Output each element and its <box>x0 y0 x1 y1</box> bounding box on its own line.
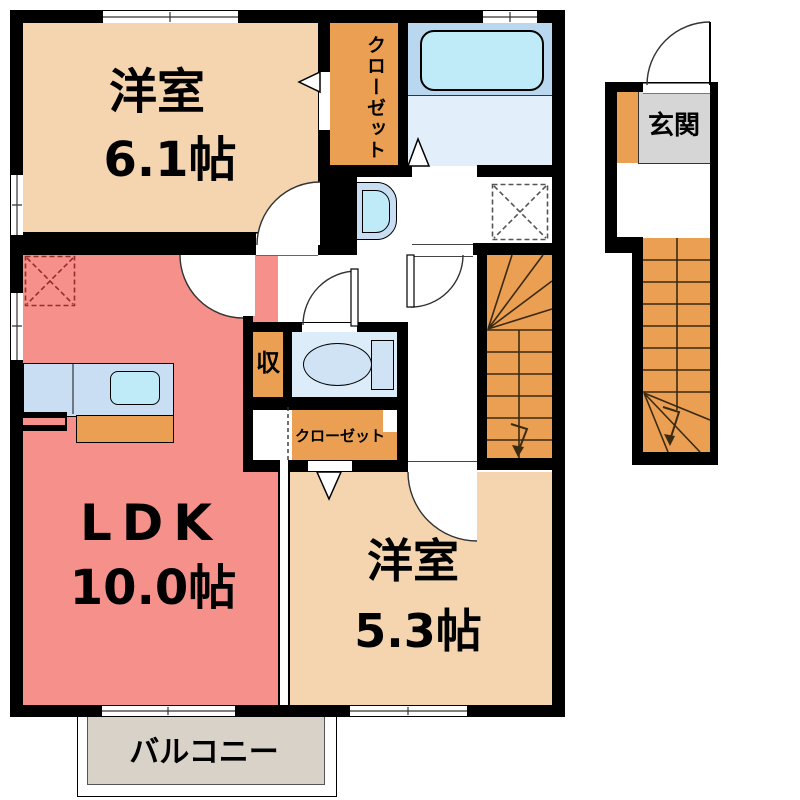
window-western1-left <box>11 175 23 235</box>
window-ldk-left <box>11 293 23 360</box>
room-western1-name: 洋室 <box>57 66 257 119</box>
wall-stairs-bottom <box>477 458 565 470</box>
wall-entry-stub <box>605 237 643 253</box>
closet-bottom-label: クローゼット <box>290 428 390 445</box>
room-western1-floor <box>23 23 318 232</box>
room-western1-size: 6.1帖 <box>62 134 278 187</box>
wall-entry-bottom <box>632 452 718 465</box>
bathtub <box>420 30 544 91</box>
wall-closet-top-west <box>318 10 330 255</box>
closet-top-label: クローゼット <box>341 30 385 166</box>
washbasin-bowl <box>362 190 390 233</box>
wall-junction <box>330 167 357 255</box>
storage-label: 収 <box>252 350 284 376</box>
window-ldk-bottom <box>102 706 235 716</box>
door-western2-threshold <box>408 461 477 473</box>
door-corridor-threshold <box>412 244 473 257</box>
door-closet-bottom-gap <box>308 461 352 471</box>
wall-bath-south-east <box>477 165 565 177</box>
stairs-entrance <box>643 238 710 452</box>
door-closet-top-gap <box>319 72 330 130</box>
wall-wc-block-mid <box>243 397 408 410</box>
entrance-label: 玄関 <box>634 112 714 141</box>
room-western2-size: 5.3帖 <box>318 606 518 657</box>
room-ldk-name: LDK <box>51 496 251 551</box>
room-western2-floor <box>290 472 552 705</box>
door-toilet-leaf <box>351 269 358 326</box>
door-toilet-swing <box>303 271 357 325</box>
opening-bath-washbasin <box>412 166 477 176</box>
kitchen-sink <box>110 371 160 405</box>
kitchen-cabinet <box>76 415 174 443</box>
room-western2-name: 洋室 <box>313 536 513 587</box>
toilet-tank <box>371 340 394 390</box>
balcony-label: バルコニー <box>104 736 304 769</box>
wall-outer-bottom <box>10 705 565 717</box>
room-ldk-floor <box>23 255 278 705</box>
door-entrance-threshold <box>643 83 710 94</box>
wall-outer-left <box>10 10 23 717</box>
window-western1-top <box>103 11 238 23</box>
floor-plan: 洋室 6.1帖 LDK 10.0帖 洋室 5.3帖 クローゼット クローゼット … <box>0 0 800 800</box>
wall-closet-bath-divider <box>398 10 408 177</box>
kitchen-half-wall-slot <box>23 418 65 425</box>
wall-entry-left-upper <box>605 92 617 253</box>
wall-storage-toilet-divider <box>283 332 292 397</box>
dead-space <box>253 410 283 460</box>
door-corridor-swing <box>411 255 463 307</box>
room-ldk-size: 10.0帖 <box>53 562 253 615</box>
stairs-main <box>487 255 552 458</box>
wall-ldk-western2-thin <box>278 460 290 705</box>
door-western1-threshold <box>256 233 318 256</box>
toilet-bowl <box>303 343 372 386</box>
wall-outer-top <box>10 10 565 23</box>
door-entrance-swing <box>647 22 710 85</box>
washer-space-marker <box>493 185 548 240</box>
window-western2-bottom <box>350 706 467 716</box>
wall-wc-block-east <box>397 322 408 472</box>
door-ldk-gap <box>242 255 255 316</box>
wall-stairs-top <box>473 243 565 255</box>
wall-outer-right <box>552 10 565 717</box>
door-toilet-gap <box>302 323 357 332</box>
wall-stairs-west <box>477 255 487 470</box>
door-corridor-leaf <box>407 255 414 307</box>
wall-entry-left-lower <box>632 253 643 465</box>
window-bath-top <box>483 11 537 23</box>
bathroom-lower-floor <box>408 95 552 166</box>
